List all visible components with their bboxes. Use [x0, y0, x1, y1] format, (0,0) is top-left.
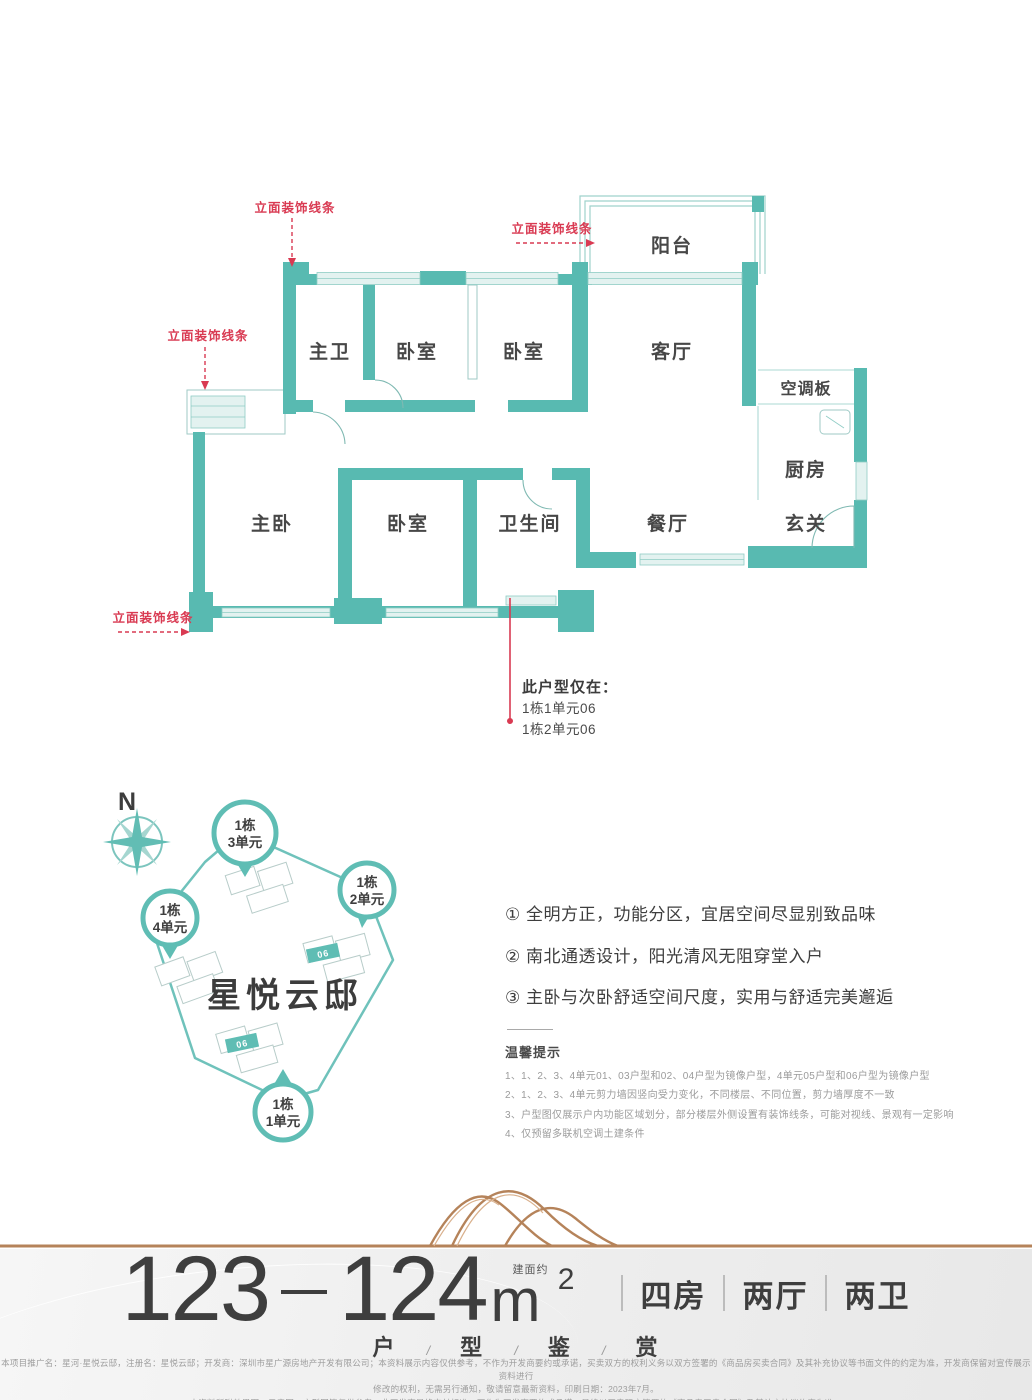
compass-icon: N — [103, 788, 171, 876]
svg-text:N: N — [118, 788, 136, 816]
project-name: 星悦云邸 — [207, 977, 363, 1015]
marker-unit-2: 1栋 2单元 — [340, 863, 394, 928]
svg-text:4单元: 4单元 — [153, 919, 188, 935]
tip-1: 1、1、2、3、4单元01、03户型和02、04户型为镜像户型，4单元05户型和… — [505, 1070, 985, 1085]
svg-text:1单元: 1单元 — [266, 1113, 301, 1129]
tip-3: 3、户型图仅展示户内功能区域划分，部分楼层外侧设置有装饰线条，可能对视线、景观有… — [505, 1109, 985, 1124]
selling-point-1: ① 全明方正，功能分区，宜居空间尽显别致品味 — [505, 902, 985, 928]
room-label-bedroom-2: 卧室 — [503, 340, 545, 363]
selling-point-3: ③ 主卧与次卧舒适空间尺度，实用与舒适完美邂逅 — [505, 985, 985, 1011]
marker-unit-3: 1栋 3单元 — [214, 802, 276, 877]
legal-disclaimer: 本项目推广名：星河·星悦云邸，注册名：星悦云邸；开发商：深圳市星广源房地产开发有… — [0, 1357, 1032, 1400]
room-label-ac-panel: 空调板 — [780, 379, 831, 398]
floor-plan-drawing: 主卫 卧室 卧室 客厅 阳台 空调板 厨房 主卧 卧室 卫生间 餐厅 玄关 立面… — [0, 0, 1032, 770]
room-label-foyer: 玄关 — [785, 512, 827, 535]
bay-window — [187, 390, 285, 434]
area-approx-label: 建面约 — [512, 1261, 548, 1277]
area-max: 124 — [339, 1254, 487, 1326]
room-label-master-bath: 主卫 — [309, 341, 351, 363]
partition-wall — [468, 285, 477, 379]
svg-text:立面装饰线条: 立面装饰线条 — [511, 221, 592, 236]
svg-text:1栋: 1栋 — [159, 902, 181, 918]
room-label-master-bedroom: 主卧 — [251, 513, 293, 535]
tagline-separator: / — [427, 1343, 431, 1358]
spec-rooms: 四房 — [640, 1271, 706, 1316]
svg-text:1栋: 1栋 — [234, 817, 256, 833]
tips-divider — [507, 1029, 553, 1030]
room-label-bedroom-1: 卧室 — [396, 340, 438, 363]
room-label-kitchen: 厨房 — [785, 458, 827, 481]
area-unit-m: m — [491, 1267, 541, 1334]
floor-plan-poster: 主卫 卧室 卧室 客厅 阳台 空调板 厨房 主卧 卧室 卫生间 餐厅 玄关 立面… — [0, 0, 1032, 1400]
room-label-bedroom-3: 卧室 — [387, 512, 429, 535]
spec-divider — [621, 1275, 623, 1311]
svg-text:立面装饰线条: 立面装饰线条 — [254, 200, 335, 215]
unit-note-line-2: 1栋2单元06 — [522, 722, 596, 737]
spec-baths: 两卫 — [844, 1271, 910, 1316]
facade-annotation-bottom: 立面装饰线条 — [112, 610, 193, 636]
tagline-separator: / — [602, 1343, 606, 1358]
tips-title: 温馨提示 — [505, 1042, 985, 1061]
disclaimer-line-2: 修改的权利，无需另行通知，敬请留意最新资料，印刷日期：2023年7月。 — [0, 1383, 1032, 1396]
spec-halls: 两厅 — [742, 1271, 808, 1316]
svg-text:1栋: 1栋 — [356, 874, 378, 890]
copy-block: ① 全明方正，功能分区，宜居空间尽显别致品味 ② 南北通透设计，阳光清风无阻穿堂… — [505, 902, 985, 1148]
tip-2: 2、1、2、3、4单元剪力墙因竖向受力变化，不同楼层、不同位置，剪力墙厚度不一致 — [505, 1089, 985, 1104]
unit-note-line-1: 1栋1单元06 — [522, 701, 596, 716]
spec-divider — [723, 1275, 725, 1311]
spec-divider — [825, 1275, 827, 1311]
walls — [189, 262, 867, 632]
selling-point-2: ② 南北通透设计，阳光清风无阻穿堂入户 — [505, 944, 985, 970]
site-plan: N 06 06 星悦云邸 — [70, 780, 410, 1170]
area-dash — [281, 1290, 327, 1294]
marker-unit-4: 1栋 4单元 — [143, 891, 197, 959]
facade-annotation-left: 立面装饰线条 — [167, 328, 248, 390]
tip-4: 4、仅预留多联机空调土建条件 — [505, 1128, 985, 1143]
svg-text:3单元: 3单元 — [228, 834, 263, 850]
svg-text:立面装饰线条: 立面装饰线条 — [112, 610, 193, 625]
disclaimer-line-3: 本资料所附效果图、示意图、户型图等仅供参考，非开发商最终交付标准，不作为开发商要… — [0, 1397, 1032, 1400]
facade-annotation-balcony: 立面装饰线条 — [511, 221, 595, 247]
area-superscript: 2 — [558, 1263, 575, 1297]
svg-text:1栋: 1栋 — [272, 1096, 294, 1112]
disclaimer-line-1: 本项目推广名：星河·星悦云邸，注册名：星悦云邸；开发商：深圳市星广源房地产开发有… — [0, 1357, 1032, 1383]
building-cluster-top — [225, 857, 298, 918]
area-min: 123 — [122, 1254, 270, 1326]
svg-text:立面装饰线条: 立面装饰线条 — [167, 328, 248, 343]
balcony-outline — [580, 196, 765, 274]
room-label-dining-room: 餐厅 — [647, 512, 689, 535]
room-label-bathroom: 卫生间 — [498, 512, 561, 535]
area-row: 123 124 m 建面约 2 四房 两厅 两卫 — [0, 1254, 1032, 1326]
unit-note-title: 此户型仅在： — [522, 678, 618, 696]
facade-annotation-top: 立面装饰线条 — [254, 200, 335, 267]
svg-text:2单元: 2单元 — [350, 891, 385, 907]
tagline-separator: / — [514, 1343, 518, 1358]
area-unit: m 建面约 2 — [491, 1277, 575, 1326]
room-label-living-room: 客厅 — [651, 340, 693, 363]
layout-specs: 四房 两厅 两卫 — [604, 1271, 910, 1316]
marker-unit-1: 1栋 1单元 — [255, 1069, 311, 1140]
room-label-balcony: 阳台 — [651, 234, 693, 257]
